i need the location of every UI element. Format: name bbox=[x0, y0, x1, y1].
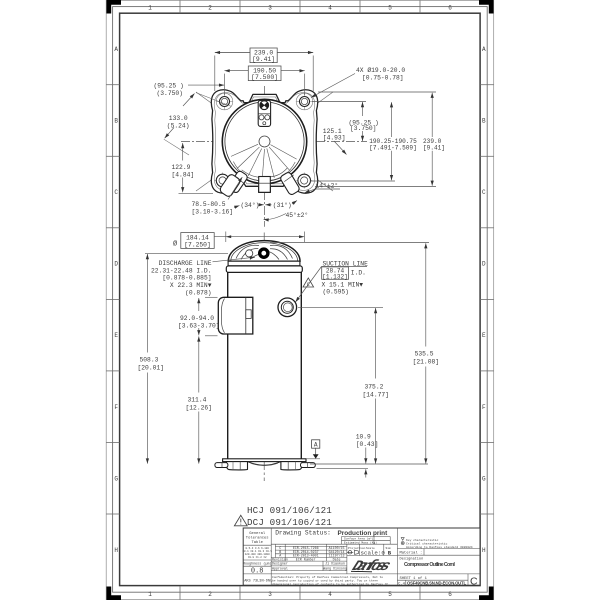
svg-text:Estimated Mass (Kg): Estimated Mass (Kg) bbox=[344, 540, 377, 544]
svg-text:A: A bbox=[482, 46, 486, 53]
svg-text:[7.250]: [7.250] bbox=[184, 242, 210, 249]
svg-text:C: C bbox=[307, 282, 310, 288]
svg-text:scale:0: scale:0 bbox=[361, 550, 386, 557]
svg-text:14°±2°: 14°±2° bbox=[316, 182, 339, 190]
svg-text:1: 1 bbox=[148, 5, 152, 12]
svg-text:5: 5 bbox=[388, 591, 392, 598]
svg-text:(3.750): (3.750) bbox=[157, 90, 183, 97]
svg-text:dimensional reproduction of co: dimensional reproduction of contents to … bbox=[272, 582, 390, 586]
svg-text:[12.26]: [12.26] bbox=[186, 405, 212, 412]
svg-text:H: H bbox=[482, 547, 486, 554]
svg-text:6: 6 bbox=[448, 5, 452, 12]
svg-text:78.5-80.5: 78.5-80.5 bbox=[192, 201, 226, 208]
svg-text:122.9: 122.9 bbox=[172, 164, 191, 171]
svg-text:508.3: 508.3 bbox=[140, 357, 159, 364]
svg-text:[4.84]: [4.84] bbox=[172, 172, 195, 179]
svg-text:Designer: Designer bbox=[272, 562, 288, 566]
svg-text:General: General bbox=[249, 531, 266, 536]
svg-text:92.0-94.0: 92.0-94.0 bbox=[180, 315, 214, 322]
svg-text:H: H bbox=[114, 547, 118, 554]
svg-text:6: 6 bbox=[448, 591, 452, 598]
svg-text:375.2: 375.2 bbox=[365, 384, 384, 391]
svg-text:ECR Number: ECR Number bbox=[296, 557, 316, 561]
svg-text:[0.75-0.78]: [0.75-0.78] bbox=[362, 75, 404, 82]
svg-text:G: G bbox=[482, 475, 486, 482]
svg-text:B: B bbox=[482, 118, 486, 125]
svg-text:HCJ 091/106/121: HCJ 091/106/121 bbox=[247, 505, 332, 516]
svg-text:4X Ø19.0-20.0: 4X Ø19.0-20.0 bbox=[356, 66, 405, 74]
svg-text:(5.24): (5.24) bbox=[167, 122, 190, 129]
svg-text:Surface Area (m²): Surface Area (m²) bbox=[344, 536, 374, 540]
svg-text:[7.500]: [7.500] bbox=[251, 74, 278, 81]
svg-text:C: C bbox=[114, 189, 118, 196]
svg-text:[9.41]: [9.41] bbox=[252, 56, 275, 63]
svg-text:E: E bbox=[482, 332, 486, 339]
svg-text:D: D bbox=[482, 261, 486, 268]
svg-text:Danfoss: Danfoss bbox=[349, 558, 393, 575]
svg-text:F: F bbox=[114, 404, 118, 411]
svg-text:I.D.: I.D. bbox=[351, 270, 366, 277]
svg-text:311.4: 311.4 bbox=[188, 397, 207, 404]
svg-text:5: 5 bbox=[388, 5, 392, 12]
svg-text:[3.10-3.16]: [3.10-3.16] bbox=[192, 208, 234, 215]
svg-text:Material :: Material : bbox=[400, 550, 423, 555]
svg-text:133.0: 133.0 bbox=[169, 115, 188, 122]
svg-text:4: 4 bbox=[328, 591, 332, 598]
svg-text:B: B bbox=[114, 118, 118, 125]
svg-text:[7.491-7.509]: [7.491-7.509] bbox=[369, 145, 417, 152]
svg-text:(95.25 ): (95.25 ) bbox=[154, 83, 184, 90]
svg-text:Ji Xiaokun: Ji Xiaokun bbox=[325, 562, 345, 566]
svg-text:1: 1 bbox=[148, 591, 152, 598]
svg-text:[1.132]: [1.132] bbox=[322, 274, 348, 281]
svg-text:Wang Xinsong: Wang Xinsong bbox=[323, 566, 347, 570]
svg-text:[3.750]: [3.750] bbox=[350, 125, 376, 132]
svg-text:(0.878): (0.878) bbox=[185, 289, 211, 296]
svg-text:(31°): (31°) bbox=[273, 201, 292, 209]
svg-text:[3.63-3.70]: [3.63-3.70] bbox=[178, 322, 220, 329]
svg-text:3: 3 bbox=[268, 5, 272, 12]
svg-text:Approval: Approval bbox=[272, 566, 288, 570]
svg-text:4: 4 bbox=[328, 5, 332, 12]
svg-text:Ø: Ø bbox=[173, 240, 177, 249]
svg-text:(0.595): (0.595) bbox=[323, 289, 349, 296]
svg-text:535.5: 535.5 bbox=[415, 351, 434, 358]
svg-text:C: C bbox=[482, 189, 486, 196]
svg-text:C.4: C.4 bbox=[398, 582, 406, 586]
svg-text:Compressor Outline Coml: Compressor Outline Coml bbox=[404, 562, 456, 568]
svg-text:F: F bbox=[482, 404, 486, 411]
svg-text:Table: Table bbox=[251, 540, 263, 545]
svg-text:10.9: 10.9 bbox=[356, 434, 371, 441]
svg-text:Drawing Status:: Drawing Status: bbox=[275, 529, 331, 536]
svg-text:[20.01]: [20.01] bbox=[138, 365, 164, 372]
svg-text:Tolerances: Tolerances bbox=[246, 536, 269, 541]
svg-text:be handed over to copied or us: be handed over to copied or used by thir… bbox=[272, 578, 378, 582]
svg-text:A: A bbox=[114, 46, 118, 53]
svg-text:45°±2°: 45°±2° bbox=[286, 211, 309, 219]
svg-text:184.14: 184.14 bbox=[186, 234, 209, 241]
svg-text:[0.878-0.885]: [0.878-0.885] bbox=[162, 275, 211, 282]
svg-text:D: D bbox=[114, 261, 118, 268]
svg-text:[21.08]: [21.08] bbox=[413, 359, 439, 366]
svg-text:OSF49CNB.SN.ND-ECON.OUTL: OSF49CNB.SN.ND-ECON.OUTL bbox=[407, 581, 466, 586]
svg-text:X 15.1 MIN▼: X 15.1 MIN▼ bbox=[322, 282, 364, 289]
svg-text:According to Danfoss standard: According to Danfoss standard 3020024 bbox=[406, 545, 473, 549]
svg-text:Key characteristic: Key characteristic bbox=[406, 538, 439, 542]
svg-text:2: 2 bbox=[208, 591, 212, 598]
svg-text:A: A bbox=[314, 442, 318, 449]
svg-text:C: C bbox=[470, 575, 478, 587]
svg-text:DISCHARGE LINE: DISCHARGE LINE bbox=[159, 260, 212, 267]
svg-text:3: 3 bbox=[268, 591, 272, 598]
svg-text:Roughness (µm): Roughness (µm) bbox=[243, 561, 272, 566]
svg-text:[14.77]: [14.77] bbox=[363, 392, 389, 399]
svg-text:E: E bbox=[114, 332, 118, 339]
svg-text:[0.43]: [0.43] bbox=[356, 441, 379, 448]
svg-text:2: 2 bbox=[208, 5, 212, 12]
svg-text:(34°): (34°) bbox=[241, 201, 260, 209]
svg-text:Confidential: Property of Danf: Confidential: Property of Danfoss Commer… bbox=[272, 575, 383, 579]
svg-text:DCJ 091/106/121: DCJ 091/106/121 bbox=[247, 517, 332, 528]
svg-text:0.8: 0.8 bbox=[251, 568, 264, 576]
svg-text:Production print: Production print bbox=[338, 530, 389, 537]
svg-text:G: G bbox=[114, 475, 118, 482]
svg-text:[4.93]: [4.93] bbox=[323, 135, 346, 142]
svg-text:X 22.3 MIN▼: X 22.3 MIN▼ bbox=[170, 282, 212, 289]
svg-text:Critical characteristic: Critical characteristic bbox=[406, 541, 448, 545]
svg-text:AKS 73L3N-DNL: AKS 73L3N-DNL bbox=[244, 580, 272, 584]
svg-text:22.31-22.48 I.D.: 22.31-22.48 I.D. bbox=[151, 267, 211, 274]
svg-text:[9.41]: [9.41] bbox=[423, 145, 445, 152]
svg-text:±0.8 ±1.2 ±2: ±0.8 ±1.2 ±2 bbox=[248, 556, 267, 559]
